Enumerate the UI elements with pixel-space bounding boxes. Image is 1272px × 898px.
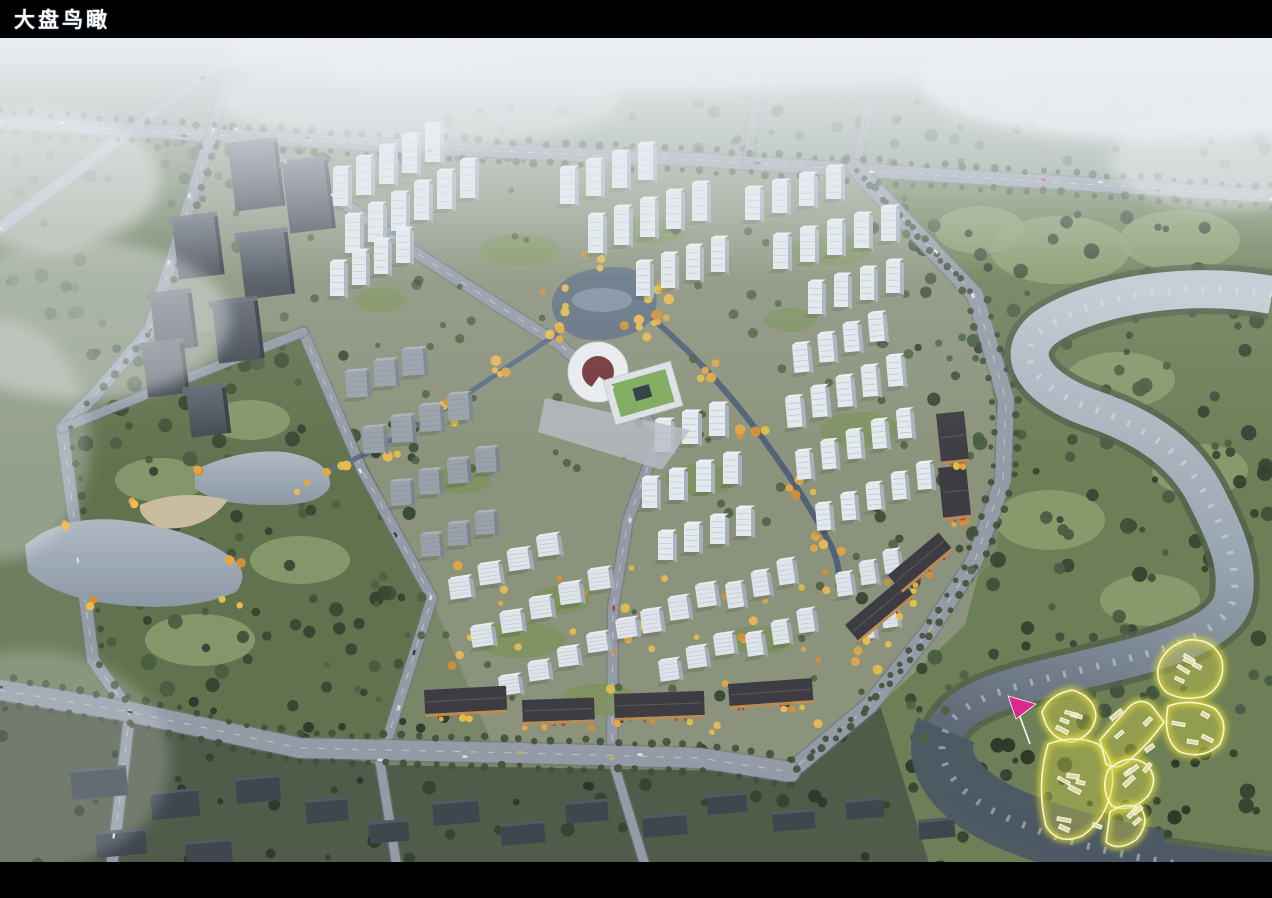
aerial-render xyxy=(0,0,1272,898)
title-bar: 大盘鸟瞰 xyxy=(0,0,1272,38)
page-title: 大盘鸟瞰 xyxy=(14,4,110,34)
fog-overlay xyxy=(0,20,1272,898)
bottom-letterbox-bar xyxy=(0,862,1272,898)
presentation-slide: 大盘鸟瞰 xyxy=(0,0,1272,898)
